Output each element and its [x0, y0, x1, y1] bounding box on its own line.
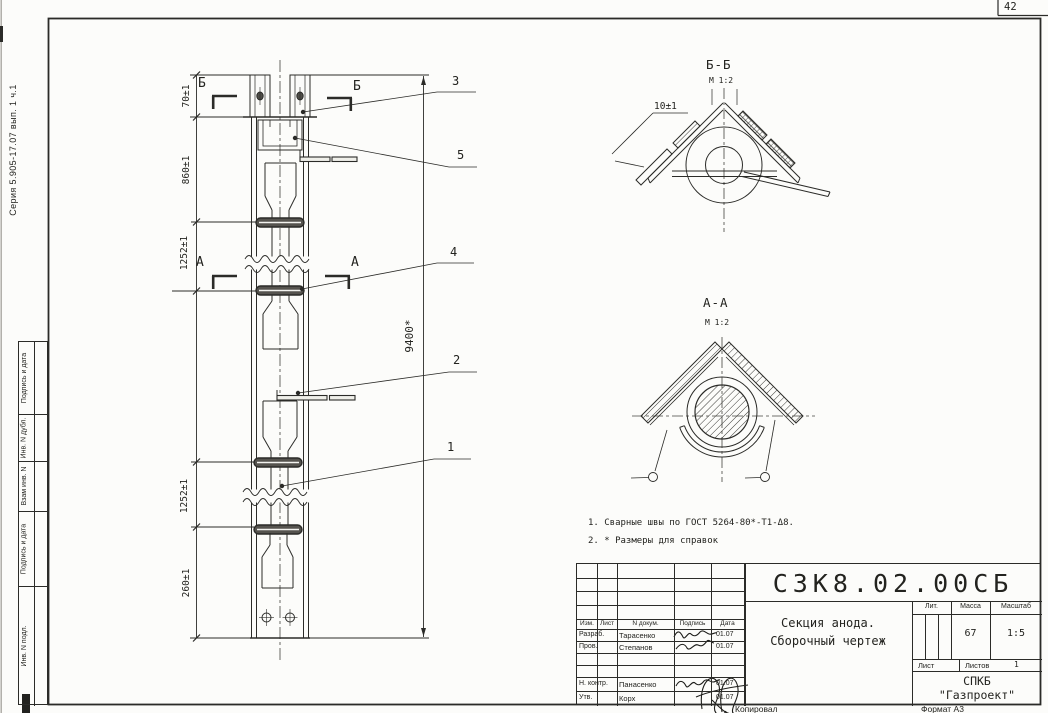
margin-stamp-strip: Подпись и дата Инв. N дубл. Взам инв. N …	[18, 341, 48, 705]
lit-label: Лит.	[912, 603, 951, 610]
callout-4: 4	[450, 245, 457, 259]
org-line1: СПКБ	[912, 674, 1042, 688]
row-date-razrab: 01.07	[716, 631, 734, 638]
drawing-title-line1: Секция анода.	[744, 616, 912, 630]
section-bb-scale: М 1:2	[709, 76, 733, 85]
stamp-label-sign-date-1: Подпись и дата	[21, 342, 33, 414]
section-aa-title: А-А	[703, 295, 729, 310]
row-role-nkontr: Н. контр.	[579, 680, 608, 687]
mass-label: Масса	[951, 603, 990, 610]
dim-label-9400: 9400*	[403, 296, 417, 376]
section-view-bb-linework	[612, 88, 830, 232]
dim-label-1252-bottom: 1252±1	[179, 456, 191, 536]
dim-label-1252-top: 1252±1	[179, 213, 191, 293]
stamp-label-inv-podl: Инв. N подл.	[21, 586, 33, 706]
drawing-title-line2: Сборочный чертеж	[744, 634, 912, 648]
section-mark-a-left: А	[196, 255, 204, 270]
row-role-utv: Утв.	[579, 694, 592, 701]
title-block: Изм. Лист N докум. Подпись Дата Разраб. …	[576, 563, 1041, 705]
stamp-label-inv-dubl: Инв. N дубл.	[21, 414, 33, 461]
doc-number: СЗК8.02.00СБ	[744, 569, 1042, 598]
sheet-label: Лист	[918, 661, 934, 670]
scale-value: 1:5	[990, 628, 1042, 639]
note-2: 2. * Размеры для справок	[588, 536, 718, 546]
stamp-label-sign-date-2: Подпись и дата	[21, 511, 33, 586]
row-date-prov: 01.07	[716, 643, 734, 650]
mass-value: 67	[951, 628, 990, 639]
format-label: Формат А3	[921, 704, 964, 713]
row-name-nkontr: Панасенко	[619, 680, 656, 689]
row-role-razrab: Разраб.	[579, 631, 604, 638]
col-izm: Изм.	[577, 620, 597, 627]
col-date: Дата	[711, 620, 744, 627]
callout-3: 3	[452, 74, 459, 88]
org-line2: "Газпроект"	[912, 688, 1042, 702]
row-name-razrab: Тарасенко	[619, 631, 655, 640]
drawing-sheet: 42 Серия 5.905-17.07 вып. 1 ч.1 70±1 860…	[0, 0, 1048, 713]
section-mark-a-right: А	[351, 255, 359, 270]
sheets-value: 1	[1014, 660, 1019, 669]
col-list: Лист	[597, 620, 617, 627]
row-name-utv: Корх	[619, 694, 635, 703]
row-name-prov: Степанов	[619, 643, 652, 652]
section-aa-scale: М 1:2	[705, 318, 729, 327]
section-mark-b-right: Б	[353, 79, 361, 94]
row-role-prov: Пров.	[579, 643, 597, 650]
section-bb-dim-10: 10±1	[654, 101, 677, 112]
row-date-nkontr: 01.07	[716, 680, 734, 687]
page-number: 42	[1004, 1, 1044, 13]
series-note: Серия 5.905-17.07 вып. 1 ч.1	[8, 70, 20, 230]
scale-label: Масштаб	[990, 603, 1042, 610]
note-1: 1. Сварные швы по ГОСТ 5264-80*-Т1-Δ8.	[588, 518, 794, 528]
section-bb-title: Б-Б	[706, 57, 732, 72]
assembly-front-view	[242, 60, 357, 662]
callout-5: 5	[457, 148, 464, 162]
section-view-aa-linework	[631, 337, 815, 482]
dim-label-860: 860±1	[181, 130, 193, 210]
callout-leaders	[280, 92, 477, 488]
copied-label: Копировал	[735, 704, 778, 713]
stamp-label-vzam-inv: Взам инв. N	[21, 461, 33, 511]
dim-label-260: 260±1	[181, 543, 193, 623]
col-doc: N докум.	[617, 620, 674, 627]
row-date-utv: 01.07	[716, 694, 734, 701]
callout-1: 1	[447, 440, 454, 454]
col-sign: Подпись	[674, 620, 711, 627]
callout-2: 2	[453, 353, 460, 367]
sheets-label: Листов	[965, 661, 989, 670]
section-mark-b-left: Б	[198, 76, 206, 91]
dim-label-70: 70±1	[181, 56, 193, 136]
